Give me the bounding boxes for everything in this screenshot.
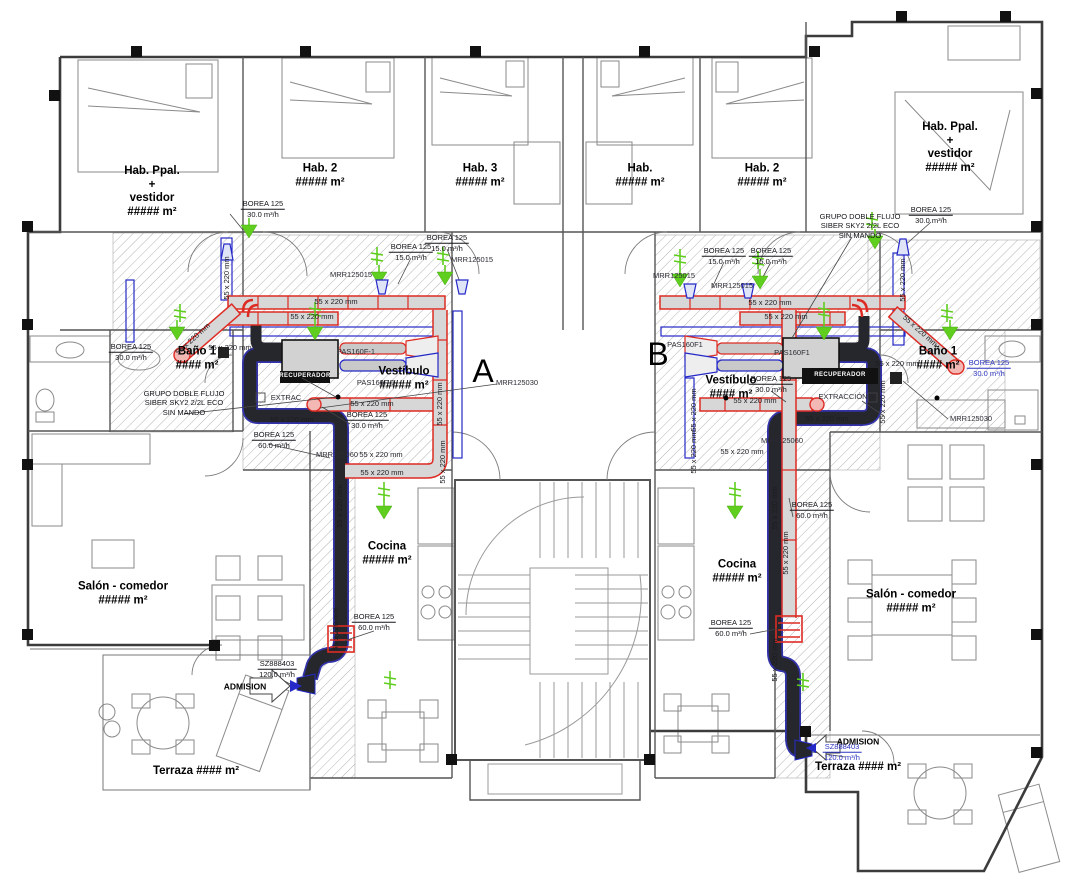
structural-pilaster xyxy=(1031,459,1042,470)
structural-pilaster xyxy=(1031,221,1042,232)
structural-pilaster xyxy=(1031,88,1042,99)
green-airflow-arrow-icon xyxy=(376,506,392,519)
structural-pilaster xyxy=(300,46,311,57)
structural-pilaster xyxy=(809,46,820,57)
structural-pilaster xyxy=(1000,11,1011,22)
structural-pilaster xyxy=(22,221,33,232)
structural-pilaster xyxy=(800,726,811,737)
supply-diffuser-icon xyxy=(456,280,468,294)
floorplan-canvas: Hab. Ppal.+vestidor##### m²Hab. 2##### m… xyxy=(0,0,1073,879)
structural-pilaster xyxy=(22,629,33,640)
green-valve-icon xyxy=(729,482,741,500)
structural-pilaster xyxy=(1031,319,1042,330)
structural-pilaster xyxy=(470,46,481,57)
structural-pilaster xyxy=(22,459,33,470)
structural-pilaster xyxy=(49,90,60,101)
structural-pilaster xyxy=(209,640,220,651)
green-valve-icon xyxy=(866,212,878,230)
structural-pilaster xyxy=(446,754,457,765)
walls xyxy=(28,22,1042,871)
structural-pilaster xyxy=(1031,747,1042,758)
floorplan-drawing xyxy=(0,0,1073,879)
green-valve-icon xyxy=(384,671,396,689)
furniture xyxy=(30,26,1060,872)
structural-pilaster xyxy=(639,46,650,57)
structural-pilaster xyxy=(22,319,33,330)
green-valve-icon xyxy=(378,482,390,500)
structural-pilaster xyxy=(1031,629,1042,640)
structural-pilaster xyxy=(131,46,142,57)
structural-pilaster xyxy=(644,754,655,765)
green-airflow-arrow-icon xyxy=(727,506,743,519)
structural-pilaster xyxy=(896,11,907,22)
staircase xyxy=(458,482,648,794)
